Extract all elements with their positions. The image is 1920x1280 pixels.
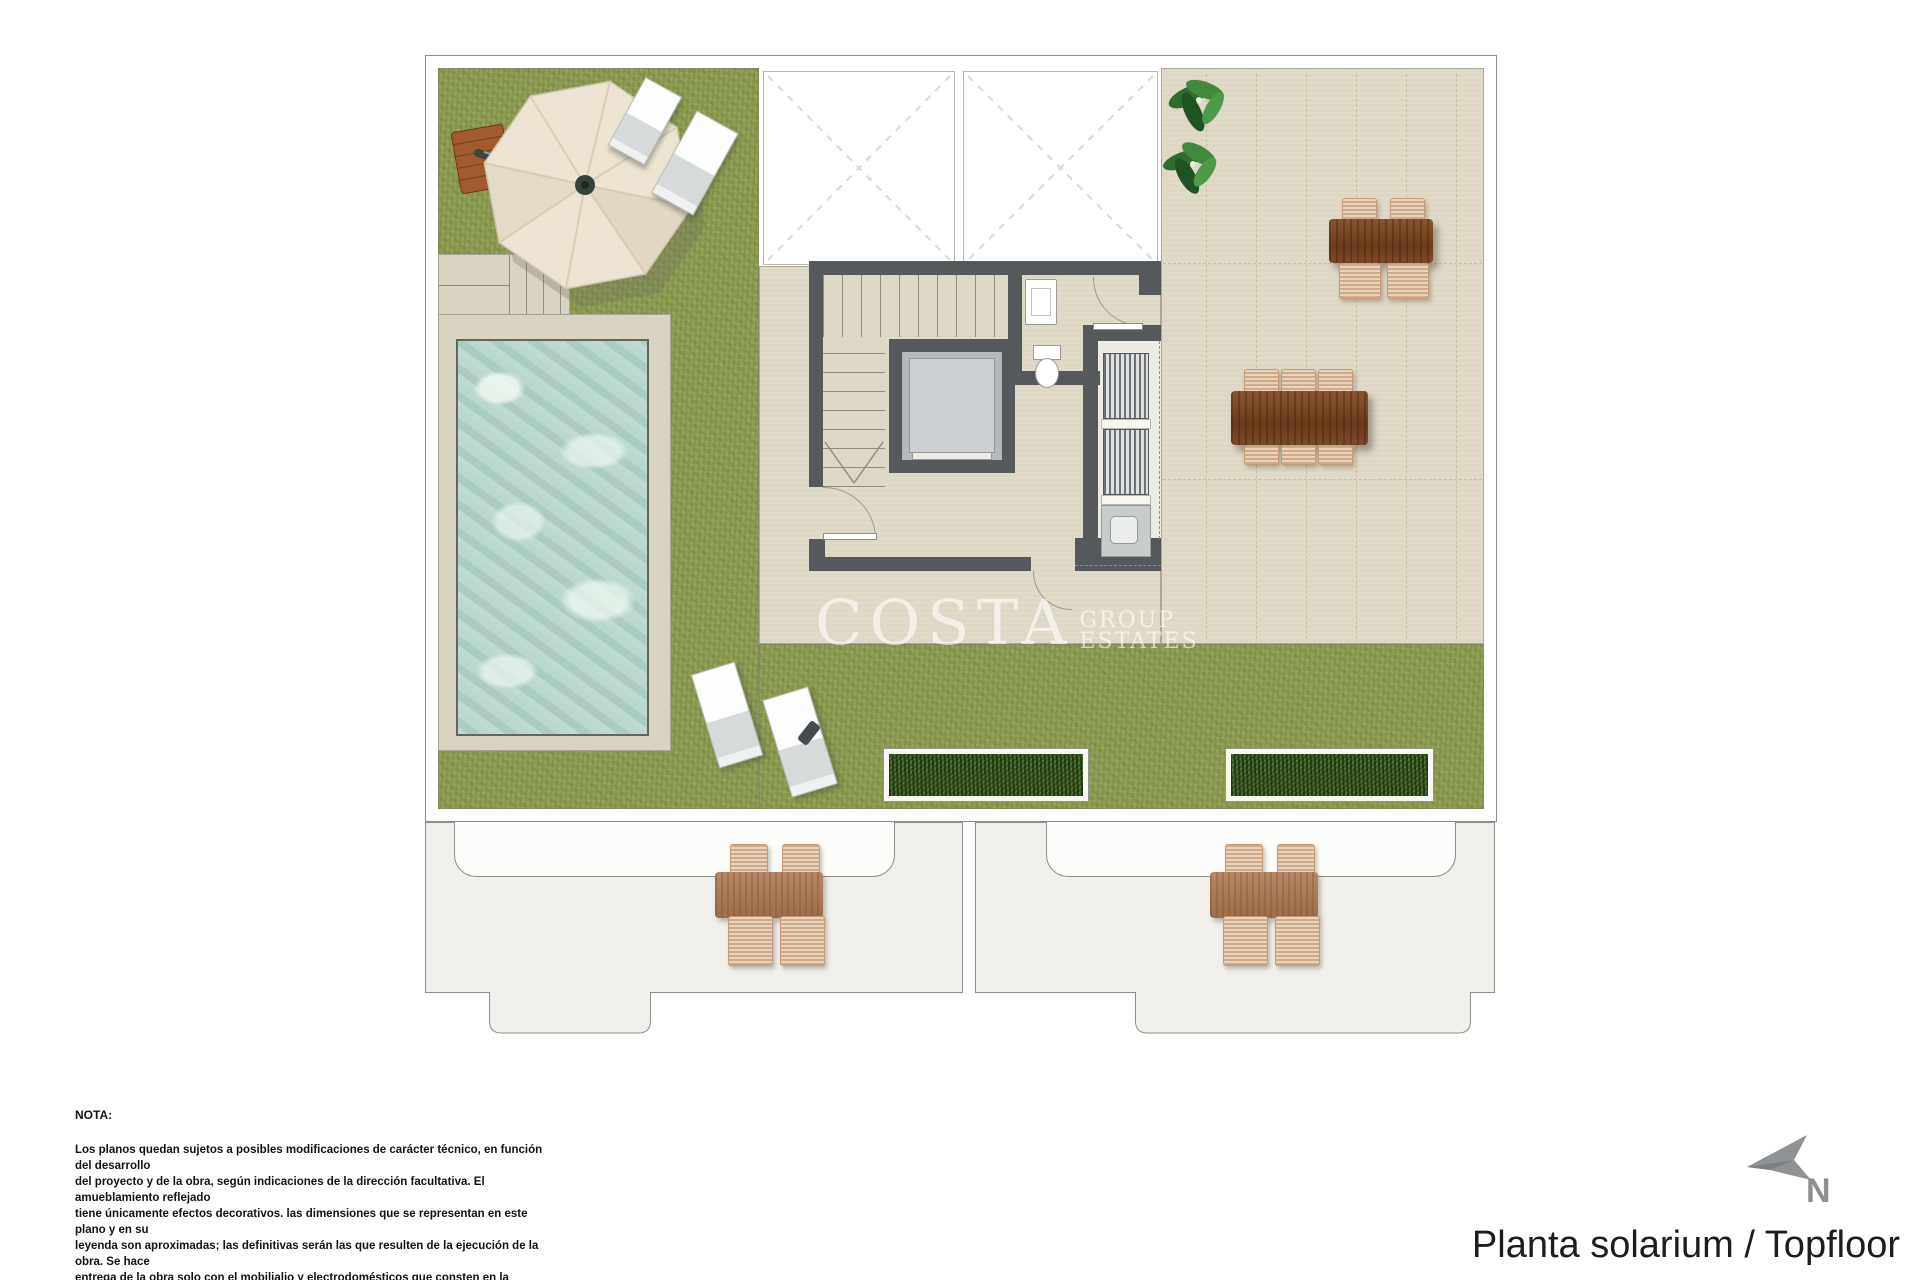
swimming-pool [456, 339, 649, 736]
note-body-text: Los planos quedan sujetos a posibles mod… [75, 1142, 545, 1280]
stair-treads-top [823, 275, 1008, 337]
service-core [809, 261, 1161, 571]
paving-joint-line [1163, 263, 1482, 264]
elevator-shaft [889, 339, 1015, 473]
planter-plants [1231, 754, 1428, 796]
page: COSTA GROUP ESTATES NOTA: Los planos que… [0, 0, 1920, 1280]
paving-joint-line [1306, 74, 1307, 639]
note-block: NOTA: Los planos quedan sujetos a posibl… [75, 1108, 545, 1280]
core-wall [809, 261, 1161, 275]
chair [1387, 263, 1429, 299]
paving-joint-line [1256, 74, 1257, 639]
planter-box [884, 749, 1088, 801]
paving-joint-line [1356, 74, 1357, 639]
washbasin [1025, 279, 1057, 325]
chair [780, 916, 825, 966]
elevator-car [909, 358, 995, 453]
core-wall [1083, 325, 1098, 555]
lower-terrace-right [975, 822, 1495, 1036]
chair [1281, 445, 1316, 465]
door-leaf [823, 533, 877, 540]
elevator-door-threshold [912, 452, 992, 460]
shelf [1101, 495, 1151, 505]
solarium-floor-plan [425, 55, 1497, 822]
north-label: N [1806, 1172, 1831, 1211]
open-edge-dashed [1159, 341, 1160, 539]
door-swing-arc [1093, 277, 1142, 326]
paving-joint-line [1406, 74, 1407, 639]
core-wall [809, 261, 823, 487]
paving-joint-line [1163, 479, 1482, 480]
open-edge-dashed [1075, 565, 1161, 566]
core-wall [1139, 275, 1161, 295]
plan-title: Planta solarium / Topfloor [1200, 1224, 1900, 1267]
ac-unit [1103, 353, 1149, 419]
terrace-table [715, 872, 823, 918]
chair [1223, 916, 1268, 966]
planter-plants [889, 754, 1083, 796]
covered-recess [454, 822, 895, 877]
void-cross-marks [964, 72, 1157, 264]
chair [1339, 263, 1381, 299]
sink-counter [1101, 505, 1151, 557]
parasol-umbrella [438, 68, 768, 358]
sink-basin [1110, 516, 1138, 544]
roof-void-skylight [763, 71, 955, 265]
chair [1244, 445, 1279, 465]
paving-joint-line [1456, 74, 1457, 639]
dining-table [1329, 219, 1433, 263]
chair [1275, 916, 1320, 966]
toilet-bowl [1035, 358, 1059, 388]
chair [1318, 445, 1353, 465]
lower-terrace-left [425, 822, 963, 1036]
potted-plant [1161, 68, 1233, 213]
note-heading: NOTA: [75, 1108, 545, 1122]
stair-flight-left [823, 337, 885, 487]
door-leaf [1093, 323, 1143, 330]
chair [728, 916, 773, 966]
core-wall [809, 557, 1031, 571]
planter-box [1226, 749, 1433, 801]
roof-void-skylight [963, 71, 1158, 265]
shelf [1101, 419, 1151, 429]
basin-bowl [1031, 288, 1051, 316]
dining-table-large [1231, 391, 1368, 445]
ac-unit [1103, 429, 1149, 495]
void-cross-marks [764, 72, 954, 264]
stair-direction-mark [823, 337, 885, 487]
terrace-table [1210, 872, 1318, 918]
